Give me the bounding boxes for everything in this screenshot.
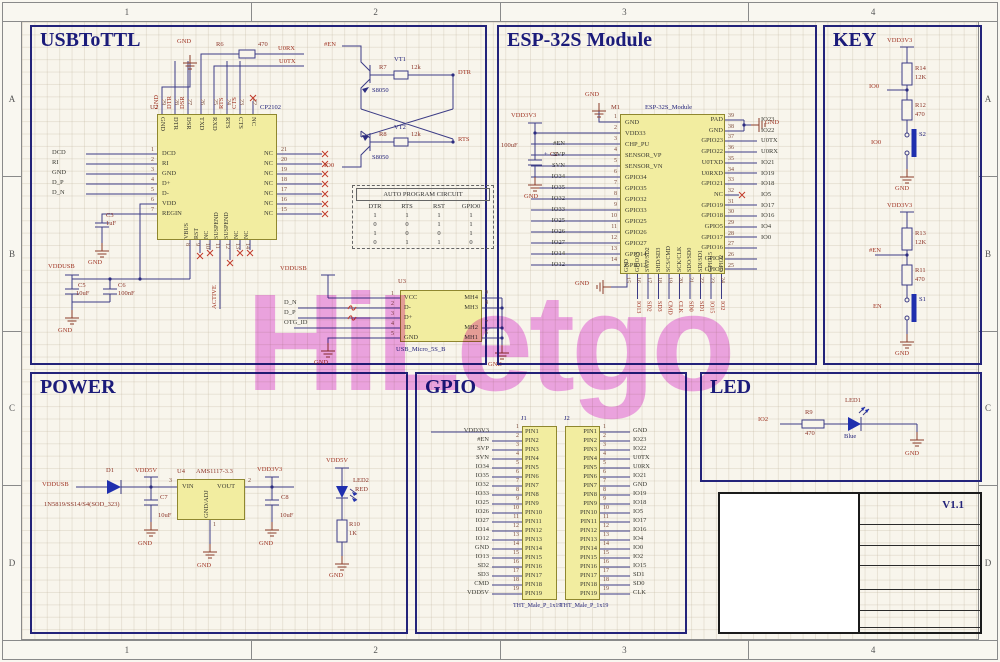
- pin-number: 10: [202, 243, 212, 257]
- net-label: IO18: [761, 179, 778, 190]
- led2-color: RED: [355, 486, 368, 493]
- j1-pin-numbers: 12345678910111213141516171819: [495, 423, 519, 594]
- u3-net-labels: D_ND_POTG_ID: [284, 298, 307, 328]
- pin-number: 15: [622, 277, 633, 289]
- c5-ref: C5: [78, 282, 86, 289]
- d1-ref: D1: [106, 467, 114, 474]
- io0-net: IO0: [871, 139, 881, 146]
- pin-number: 8: [603, 486, 609, 495]
- pin-number: 11: [495, 513, 519, 522]
- pin-number: 9: [495, 495, 519, 504]
- net-label: IO35: [519, 182, 565, 193]
- pin-number: 12: [495, 522, 519, 531]
- pin-number: 19: [603, 585, 609, 594]
- titleblock-divider: [860, 565, 980, 566]
- pin-number: 17: [281, 185, 287, 195]
- net-label: IO14: [427, 525, 489, 534]
- pin-number: 26: [195, 99, 208, 113]
- pin-number: 32: [728, 186, 734, 197]
- pin-name: PIN9: [563, 499, 597, 508]
- pin-name: D+: [162, 179, 182, 189]
- net-label: IO21: [761, 158, 778, 169]
- c2-value: 100uF: [501, 142, 518, 149]
- net-label: IO25: [519, 215, 565, 226]
- pin-name: GPIO13: [633, 230, 644, 272]
- pin-number: 2: [136, 155, 154, 165]
- pin-number: 8: [182, 243, 192, 257]
- net-label: IO19: [633, 489, 650, 498]
- net-label: IO4: [761, 222, 778, 233]
- net-label: IO22: [633, 444, 650, 453]
- pin-name: CTS: [234, 117, 247, 151]
- pin-number: 18: [654, 277, 665, 289]
- net-label: DTR: [163, 63, 176, 109]
- table-header: RTS: [391, 202, 423, 211]
- r12-value: 470: [915, 111, 925, 118]
- c8-ref: C8: [281, 494, 289, 501]
- vt2-ref: VT2: [394, 124, 406, 131]
- vdd3v3-net: VDD3V3: [257, 466, 282, 473]
- pin-number: 3: [136, 165, 154, 175]
- vt2-part: S8050: [372, 154, 389, 161]
- power-block: POWER VDDUSB D1 1N5819/SS14/S4(SOD_323): [30, 372, 408, 634]
- ruler-col-label: 3: [501, 3, 750, 21]
- pin-number: 11: [597, 222, 617, 233]
- pin-name: NC: [247, 117, 260, 151]
- titleblock-divider: [860, 589, 980, 590]
- u0rx-net: U0RX: [278, 45, 295, 52]
- table-headers: DTRRTSRSTGPIO0: [353, 202, 493, 211]
- pin-name: PIN4: [563, 454, 597, 463]
- vddusb-net: VDDUSB: [48, 263, 75, 270]
- net-label: IO0: [761, 233, 778, 244]
- pin-number: 1: [603, 423, 609, 432]
- net-label: SVN: [519, 160, 565, 171]
- r12-ref: R12: [915, 102, 926, 109]
- pin-number: 7: [603, 477, 609, 486]
- net-label: GND: [633, 480, 650, 489]
- pin-name: ID: [404, 323, 418, 333]
- gnd-label: GND: [765, 119, 779, 126]
- pin-name: GPIO2: [717, 230, 728, 272]
- pin-number: 3: [169, 478, 172, 485]
- pin-name: PIN14: [563, 544, 597, 553]
- c3-ref: C3: [106, 212, 114, 219]
- pin-number: 14: [603, 540, 609, 549]
- pin-number: 3: [382, 309, 394, 319]
- titleblock-divider: [860, 610, 980, 611]
- pin-number: 2: [597, 123, 617, 134]
- net-label: IO27: [427, 516, 489, 525]
- r8-value: 12k: [411, 131, 421, 138]
- pin-name: PIN7: [563, 481, 597, 490]
- gpio-block: GPIO J1 J2 VDD3V3#ENSVPSVNIO34IO35IO32IO…: [415, 372, 687, 634]
- net-label: IO16: [633, 525, 650, 534]
- pin-name: SCS/CMD: [664, 230, 675, 272]
- ruler-row-label: D: [3, 486, 21, 640]
- ruler-col-label: 1: [3, 3, 252, 21]
- c7-ref: C7: [160, 494, 168, 501]
- m1-right-net-labels: IO23IO22U0TXU0RXIO21IO19IO18IO5IO17IO16I…: [761, 115, 778, 243]
- net-label: IO13: [427, 552, 489, 561]
- u4-ref: U4: [177, 468, 185, 475]
- vt1-part: S8050: [372, 87, 389, 94]
- u3-left-pin-numbers: 12345: [382, 289, 394, 339]
- m1-left-net-labels: #ENSVPSVNIO34IO35IO32IO33IO25IO26IO27IO1…: [519, 138, 565, 270]
- pin-name: RXD: [208, 117, 221, 151]
- u2-rts-cts-labels: RTSCTS: [215, 67, 241, 109]
- net-label: IO18: [633, 498, 650, 507]
- vdd5v-net: VDD5V: [135, 467, 157, 474]
- pin-name: SDI/SD1: [696, 230, 707, 272]
- net-label: U0TX: [761, 136, 778, 147]
- table-row: 0011: [353, 220, 493, 229]
- pin-number: 13: [495, 531, 519, 540]
- c7-value: 10uF: [158, 512, 171, 519]
- io0-net: IO0: [869, 83, 879, 90]
- pin-name: SUSPEND: [212, 198, 222, 239]
- usbtottl-block: USBToTTL: [30, 25, 487, 365]
- dtr-net: DTR: [458, 69, 471, 76]
- version-label: V1.1: [942, 499, 964, 511]
- pin-number: 34: [728, 165, 734, 176]
- pin-number: 7: [136, 205, 154, 215]
- pin-number: 5: [136, 185, 154, 195]
- net-label: CLK: [633, 588, 650, 597]
- pin-number: 13: [232, 243, 242, 257]
- pin-number: 14: [495, 540, 519, 549]
- pin-name: NC: [237, 169, 273, 179]
- u2-left-pin-names: DCDRIGNDD+D-VDDREGIN: [162, 149, 182, 219]
- pin-number: 9: [597, 200, 617, 211]
- pin-number: 12: [597, 233, 617, 244]
- vddusb-net: VDDUSB: [280, 265, 307, 272]
- net-label: GND: [52, 168, 84, 178]
- u3-pin-mh4: MH4: [456, 294, 478, 301]
- pin-name: PIN13: [563, 535, 597, 544]
- pin-number: 2: [248, 478, 251, 485]
- pin-number: 12: [222, 243, 232, 257]
- u4-vout-pin: VOUT: [217, 483, 235, 490]
- u2-right-pin-numbers: 21201918171615: [281, 145, 287, 215]
- ruler-col-label: 4: [749, 3, 997, 21]
- net-label: IO21: [633, 471, 650, 480]
- net-label: DCD: [52, 148, 84, 158]
- pin-number: 10: [597, 211, 617, 222]
- en-net: #EN: [324, 41, 336, 48]
- pin-name: VBUS: [182, 198, 192, 239]
- s2-ref: S2: [919, 131, 926, 138]
- pin-name: RTS: [221, 117, 234, 151]
- pin-name: PIN15: [525, 553, 542, 562]
- pin-number: 5: [495, 459, 519, 468]
- u3-ref: U3: [398, 278, 406, 285]
- vdd5v-net: VDD5V: [326, 457, 348, 464]
- net-label: CTS: [228, 67, 241, 109]
- pin-number: 3: [495, 441, 519, 450]
- table-header: DTR: [359, 202, 391, 211]
- net-label: SD1: [633, 570, 650, 579]
- pin-number: 17: [603, 567, 609, 576]
- pin-number: 4: [597, 145, 617, 156]
- net-label: SD1: [696, 301, 707, 331]
- pin-number: 26: [728, 250, 734, 261]
- net-label: IO15: [633, 561, 650, 570]
- pin-name: SUSPEND: [222, 198, 232, 239]
- pin-number: 8: [485, 300, 488, 307]
- net-label: IO14: [519, 248, 565, 259]
- pin-number: 15: [495, 549, 519, 558]
- table-row: 1111: [353, 211, 493, 220]
- j2-footprint: THT_Male_P_1x19: [560, 603, 608, 610]
- table-header: RST: [423, 202, 455, 211]
- pin-name: PIN18: [525, 580, 542, 589]
- pin-number: 4: [136, 175, 154, 185]
- pin-number: 10: [495, 504, 519, 513]
- pin-number: 4: [495, 450, 519, 459]
- net-label: D_N: [284, 298, 307, 308]
- net-label: IO16: [761, 211, 778, 222]
- gnd-label: GND: [177, 38, 191, 45]
- pin-number: 20: [675, 277, 686, 289]
- net-label: #EN: [519, 138, 565, 149]
- net-label: #EN: [427, 435, 489, 444]
- pin-name: PIN17: [525, 571, 542, 580]
- pin-number: 16: [495, 558, 519, 567]
- pin-name: PIN15: [563, 553, 597, 562]
- pin-number: 18: [603, 576, 609, 585]
- en-label: EN: [873, 303, 882, 310]
- j1-net-labels: VDD3V3#ENSVPSVNIO34IO35IO32IO33IO25IO26I…: [427, 426, 489, 597]
- led2-ref: LED2: [353, 477, 369, 484]
- u3-left-pin-names: VCCD-D+IDGND: [404, 293, 418, 343]
- s1-ref: S1: [919, 296, 926, 303]
- pin-number: 28: [728, 229, 734, 240]
- pin-name: U0RXD: [649, 169, 723, 180]
- net-label: IO23: [633, 435, 650, 444]
- c6-value: 100nF: [118, 290, 135, 297]
- pin-name: PIN5: [563, 463, 597, 472]
- gnd-label: GND: [138, 540, 152, 547]
- u0tx-net: U0TX: [279, 58, 296, 65]
- net-label: CMD: [664, 301, 675, 331]
- pin-number: 16: [633, 277, 644, 289]
- pin-number: 9: [192, 243, 202, 257]
- pin-name: PIN13: [525, 535, 542, 544]
- gnd-label: GND: [905, 450, 919, 457]
- net-label: IO17: [761, 201, 778, 212]
- pin-name: PAD: [649, 115, 723, 126]
- pin-number: 22: [696, 277, 707, 289]
- net-label: IO12: [427, 534, 489, 543]
- pin-number: 18: [281, 175, 287, 185]
- pin-number: 4: [382, 319, 394, 329]
- net-label: IO26: [427, 507, 489, 516]
- c8-value: 10uF: [280, 512, 293, 519]
- pin-number: 6: [495, 468, 519, 477]
- net-label: OTG_ID: [284, 318, 307, 328]
- pin-name: SDO/SD0: [685, 230, 696, 272]
- u2-top-pin-names: GNDDTRDSRTXDRXDRTSCTSNC: [156, 117, 260, 151]
- pin-number: 1: [213, 522, 216, 529]
- titleblock-blank-area: [720, 494, 860, 632]
- net-label: IO15: [706, 301, 717, 331]
- ruler-col-label: 2: [252, 3, 501, 21]
- pin-number: 3: [603, 441, 609, 450]
- gnd-label: GND: [58, 327, 72, 334]
- pin-number: 7: [597, 178, 617, 189]
- r11-ref: R11: [915, 267, 926, 274]
- ruler-left: ABCD: [2, 22, 22, 640]
- pin-number: 13: [597, 244, 617, 255]
- gnd-label: GND: [259, 540, 273, 547]
- pin-number: 15: [603, 549, 609, 558]
- pin-number: 37: [728, 132, 734, 143]
- table-title: AUTO PROGRAM CIRCUIT: [356, 188, 490, 201]
- pin-name: PIN3: [525, 445, 542, 454]
- net-label: VDD3V3: [427, 426, 489, 435]
- net-label: SD0: [685, 301, 696, 331]
- pin-number: 6: [603, 468, 609, 477]
- j2-ref: J2: [564, 415, 570, 422]
- pin-number: 27: [728, 239, 734, 250]
- pin-name: D+: [404, 313, 418, 323]
- pin-number: 6: [485, 330, 488, 337]
- r7-value: 12k: [411, 64, 421, 71]
- ruler-col-label: 3: [501, 641, 750, 659]
- net-label: IO2: [633, 552, 650, 561]
- active-net: ACTIVE: [210, 267, 220, 309]
- pin-number: 20: [281, 155, 287, 165]
- pin-name: PIN9: [525, 499, 542, 508]
- m1-part: ESP-32S_Module: [645, 104, 692, 111]
- pin-name: D-: [162, 189, 182, 199]
- key-block: KEY VDD3V3 R14 12K IO0 R12 4: [823, 25, 982, 365]
- net-label: SD2: [643, 301, 654, 331]
- pin-number: 5: [382, 329, 394, 339]
- pin-number: 16: [281, 195, 287, 205]
- table-row: 1001: [353, 229, 493, 238]
- c6-ref: C6: [118, 282, 126, 289]
- net-label: IO34: [519, 171, 565, 182]
- io0-net: IO0: [324, 162, 334, 169]
- net-label: IO13: [633, 301, 644, 331]
- pin-name: PIN11: [525, 517, 542, 526]
- pin-number: 13: [603, 531, 609, 540]
- r11-value: 470: [915, 276, 925, 283]
- led1-ref: LED1: [845, 397, 861, 404]
- pin-name: GND: [649, 126, 723, 137]
- pin-name: PIN7: [525, 481, 542, 490]
- pin-name: NC: [237, 159, 273, 169]
- pin-name: PIN17: [563, 571, 597, 580]
- net-label: U0TX: [633, 453, 650, 462]
- pin-name: PIN4: [525, 454, 542, 463]
- m1-bottom-pin-numbers: 15161718192021222324: [622, 277, 727, 289]
- pin-number: 18: [495, 576, 519, 585]
- net-label: IO5: [633, 507, 650, 516]
- r6-ref: R6: [216, 41, 224, 48]
- pin-number: 1: [136, 145, 154, 155]
- pin-number: 15: [281, 205, 287, 215]
- net-label: IO0: [633, 543, 650, 552]
- pin-name: GND: [156, 117, 169, 151]
- pin-number: 2: [382, 299, 394, 309]
- pin-number: 36: [728, 143, 734, 154]
- pin-number: 9: [603, 495, 609, 504]
- pin-name: PIN18: [563, 580, 597, 589]
- r6-value: 470: [258, 41, 268, 48]
- r14-ref: R14: [915, 65, 926, 72]
- net-label: IO22: [761, 126, 778, 137]
- pin-name: PIN3: [563, 445, 597, 454]
- net-label: D_P: [52, 178, 84, 188]
- pin-name: GPIO18: [649, 211, 723, 222]
- pin-name: GPIO23: [649, 136, 723, 147]
- pin-name: U0TXD: [649, 158, 723, 169]
- c5-value: 10uF: [76, 290, 89, 297]
- m1-right-pin-numbers: 393837363534333231302928272625: [728, 111, 734, 272]
- ruler-bottom: 1234: [2, 640, 998, 660]
- pin-number: 22: [247, 99, 260, 113]
- pin-number: 12: [603, 522, 609, 531]
- pin-name: PIN12: [563, 526, 597, 535]
- pin-name: PIN19: [563, 589, 597, 598]
- pin-number: 31: [728, 197, 734, 208]
- pin-number: 17: [495, 567, 519, 576]
- net-label: IO17: [633, 516, 650, 525]
- pin-number: 5: [603, 459, 609, 468]
- u3-pin-mh2: MH2: [456, 324, 478, 331]
- pin-name: NC: [202, 198, 212, 239]
- io2-net: IO2: [758, 416, 768, 423]
- net-label: GND: [633, 426, 650, 435]
- table-row: 0110: [353, 238, 493, 247]
- net-label: RI: [52, 158, 84, 168]
- r14-value: 12K: [915, 74, 926, 81]
- j2-net-labels: GNDIO23IO22U0TXU0RXIO21GNDIO19IO18IO5IO1…: [633, 426, 650, 597]
- gnd-label: GND: [895, 185, 909, 192]
- net-label: SD0: [633, 579, 650, 588]
- pin-number: 11: [212, 243, 222, 257]
- m1-bottom-pin-names: GNDGPIO13SWP/SD2SHD/SD3SCS/CMDSCK/CLKSDO…: [622, 230, 727, 272]
- pin-number: 30: [728, 207, 734, 218]
- pin-number: 23: [706, 277, 717, 289]
- d1-part: 1N5819/SS14/S4(SOD_323): [44, 501, 119, 508]
- led1-color: Blue: [844, 433, 856, 440]
- u2-part: CP2102: [260, 104, 281, 111]
- net-label: SVP: [427, 444, 489, 453]
- net-label: DSR: [176, 63, 189, 109]
- gnd-label: GND: [88, 259, 102, 266]
- pin-number: 1: [382, 289, 394, 299]
- pin-number: 6: [597, 167, 617, 178]
- u3-pin-mh3: MH3: [456, 304, 478, 311]
- pin-name: VDD: [162, 199, 182, 209]
- pin-number: 16: [603, 558, 609, 567]
- ruler-col-label: 2: [252, 641, 501, 659]
- m1-bottom-net-labels: IO13SD2SD3CMDCLKSD0SD1IO15IO2: [622, 301, 727, 331]
- u3-part: USB_Micro_5S_B: [396, 346, 445, 353]
- pin-number: 9: [485, 290, 488, 297]
- u2-bottom-pin-names: VBUSRSTNCSUSPENDSUSPENDNCNC: [182, 198, 252, 239]
- net-label: U0RX: [761, 147, 778, 158]
- j1-ref: J1: [521, 415, 527, 422]
- c3-value: 1uF: [106, 220, 116, 227]
- r9-ref: R9: [805, 409, 813, 416]
- pin-name: VCC: [404, 293, 418, 303]
- pin-number: 1: [495, 423, 519, 432]
